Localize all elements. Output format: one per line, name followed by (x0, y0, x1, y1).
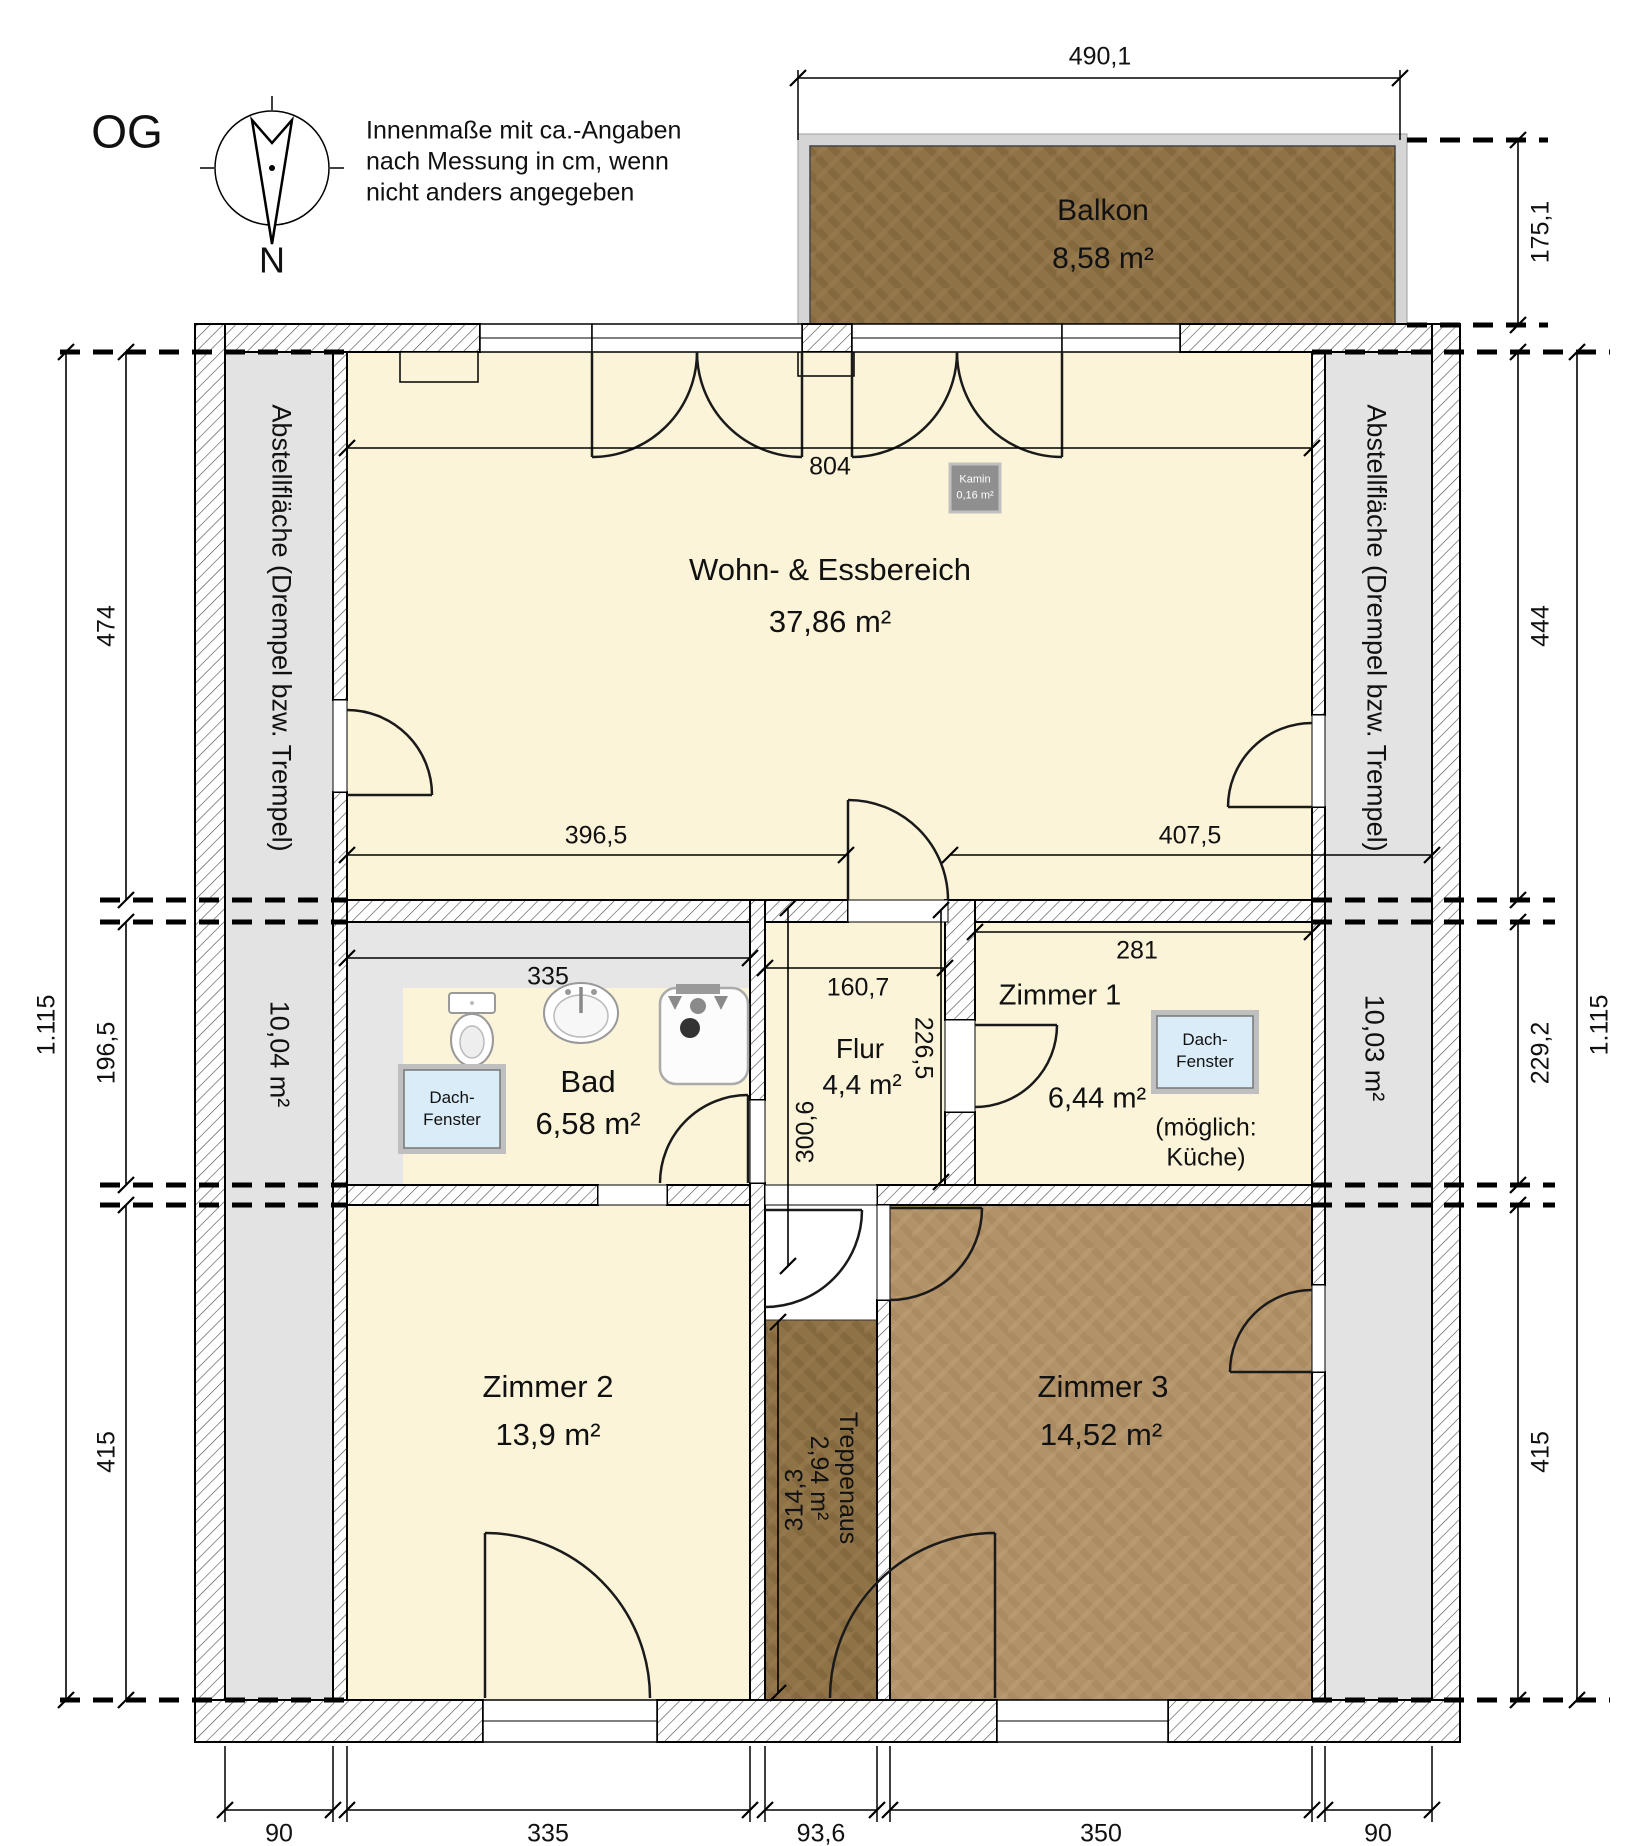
note-line1: Innenmaße mit ca.-Angaben (366, 117, 681, 146)
dim-label-right_415: 415 (1527, 1431, 1556, 1473)
room-zimmer3-area: 14,52 m² (1040, 1417, 1162, 1453)
room-treppenhaus-label: Treppenaus 2,94 m² (804, 1412, 862, 1545)
dim-label-balkon_depth: 175,1 (1527, 201, 1556, 264)
dim-label-treppe_height: 314,3 (781, 1469, 810, 1532)
room-zimmer1-area: 6,44 m² (1048, 1082, 1146, 1115)
dim-label-bottom_90_right: 90 (1364, 1820, 1392, 1846)
dim-label-bottom_350: 350 (1080, 1820, 1122, 1846)
room-zimmer1-name: Zimmer 1 (999, 979, 1121, 1012)
dachfenster-z1-line2: Fenster (1176, 1052, 1234, 1072)
page-title: OG (91, 106, 163, 159)
room-wohn-name: Wohn- & Essbereich (689, 552, 971, 588)
dim-label-balkon_width: 490,1 (1069, 43, 1132, 72)
room-zimmer1-note2: Küche) (1166, 1144, 1245, 1173)
room-balkon-name: Balkon (1057, 194, 1149, 229)
labels-layer: OG Innenmaße mit ca.-Angaben nach Messun… (0, 0, 1652, 1846)
dim-label-right_total: 1.115 (1586, 995, 1615, 1056)
abstellflaeche-right-name: Abstellfläche (Drempel bzw. Trempel) (1360, 404, 1391, 851)
kamin-name: Kamin (959, 474, 990, 487)
room-balkon-area: 8,58 m² (1052, 242, 1154, 277)
dim-label-bottom_335: 335 (527, 1820, 569, 1846)
dim-label-left_474: 474 (93, 605, 122, 647)
room-zimmer3-name: Zimmer 3 (1038, 1369, 1169, 1405)
dim-label-bottom_93_6: 93,6 (797, 1820, 846, 1846)
dim-label-bottom_90_left: 90 (265, 1820, 293, 1846)
compass-north-label: N (259, 239, 285, 280)
note-line2: nach Messung in cm, wenn (366, 148, 669, 177)
dim-label-left_415: 415 (93, 1431, 122, 1473)
room-bad-area: 6,58 m² (535, 1106, 640, 1142)
room-treppenhaus-name: Treppenaus (833, 1412, 862, 1545)
dim-label-right_229_2: 229,2 (1527, 1022, 1556, 1085)
dim-label-right_444: 444 (1527, 605, 1556, 647)
room-flur-name: Flur (836, 1033, 884, 1065)
floor-plan-og: OG Innenmaße mit ca.-Angaben nach Messun… (0, 0, 1652, 1846)
dim-label-flur_width: 160,7 (827, 974, 890, 1003)
room-zimmer2-name: Zimmer 2 (483, 1369, 614, 1405)
dachfenster-z1-line1: Dach- (1182, 1030, 1227, 1050)
note-line3: nicht anders angegeben (366, 179, 634, 208)
abstellflaeche-left-area: 10,04 m² (263, 1001, 294, 1108)
kamin-area: 0,16 m² (956, 490, 993, 503)
dim-label-left_196_5: 196,5 (93, 1022, 122, 1085)
dim-label-bad_width: 335 (527, 963, 569, 992)
dim-label-left_total: 1.115 (33, 995, 62, 1056)
room-bad-name: Bad (560, 1064, 615, 1100)
dim-label-wohn_right: 407,5 (1159, 822, 1222, 851)
room-zimmer1-note1: (möglich: (1155, 1114, 1256, 1143)
dachfenster-bad-line1: Dach- (429, 1088, 474, 1108)
room-zimmer2-area: 13,9 m² (495, 1417, 600, 1453)
dachfenster-bad-line2: Fenster (423, 1110, 481, 1130)
dim-label-flur_height_right: 226,5 (909, 1017, 938, 1080)
dim-label-flur_height_left: 300,6 (792, 1101, 821, 1164)
abstellflaeche-right-area: 10,03 m² (1358, 995, 1389, 1102)
abstellflaeche-left-name: Abstellfläche (Drempel bzw. Trempel) (265, 404, 296, 851)
dim-label-wohn_left: 396,5 (565, 822, 628, 851)
dim-label-wohn_width: 804 (809, 453, 851, 482)
dim-label-zimmer1_width: 281 (1116, 937, 1158, 966)
room-flur-area: 4,4 m² (822, 1069, 901, 1101)
room-wohn-area: 37,86 m² (769, 604, 891, 640)
